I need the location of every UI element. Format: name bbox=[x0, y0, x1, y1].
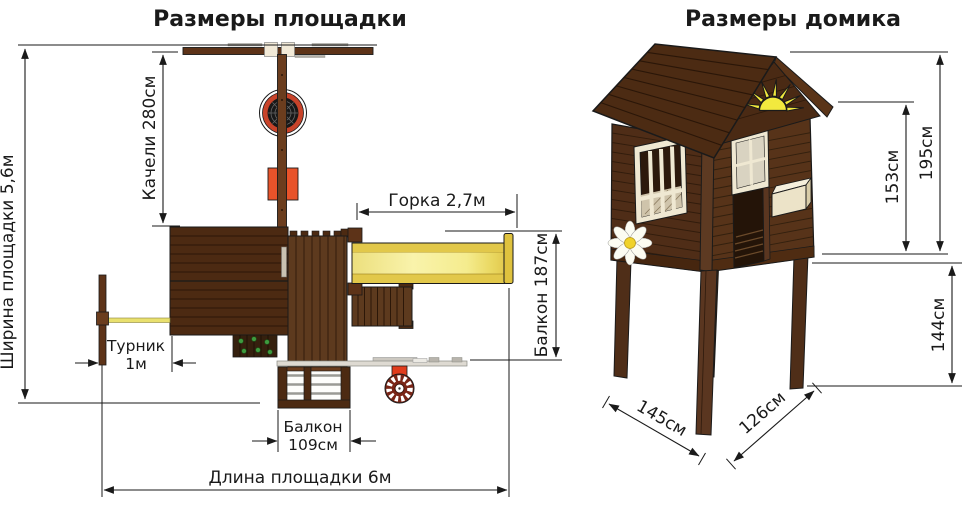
house-title: Размеры домика bbox=[685, 7, 901, 32]
dim-pullup-bar-name: Турник bbox=[106, 337, 165, 355]
house-leg-left bbox=[614, 258, 631, 378]
house-leg-front bbox=[696, 270, 717, 435]
dim-house-depth: 145см bbox=[603, 396, 706, 465]
dim-swing: Качели 280см bbox=[140, 52, 180, 226]
slide-top bbox=[348, 228, 513, 295]
dim-house-width-label: 126см bbox=[736, 388, 790, 439]
playground-title: Размеры площадки bbox=[153, 7, 407, 32]
dim-house-width: 126см bbox=[726, 383, 821, 469]
house-doorway bbox=[733, 186, 770, 268]
swing-post bbox=[278, 55, 287, 228]
playground-diagram: Размеры площадки bbox=[0, 7, 562, 497]
dim-playground-length-label: Длина площадки 6м bbox=[208, 468, 391, 488]
dim-house-legs-height: 144см bbox=[807, 263, 962, 386]
daisy-decoration bbox=[608, 221, 652, 265]
playhouse-roof-top bbox=[170, 227, 288, 335]
dim-balcony-front-name: Балкон bbox=[283, 418, 342, 436]
dim-pullup-bar-value: 1м bbox=[125, 355, 147, 373]
house-side-window bbox=[634, 136, 687, 224]
house-diagram: Размеры домика bbox=[593, 7, 962, 469]
blueprint-page: Размеры площадки bbox=[0, 0, 970, 531]
climbing-wall bbox=[233, 335, 277, 357]
dim-house-wall-height: 153см bbox=[838, 102, 914, 251]
house-corner-post bbox=[700, 140, 714, 272]
dim-slide-label: Горка 2,7м bbox=[388, 191, 486, 211]
dim-pullup-bar: Турник 1м bbox=[75, 336, 196, 373]
dim-balcony-side-label: Балкон 187см bbox=[532, 233, 552, 358]
dim-house-total-height: 195см bbox=[790, 52, 948, 254]
dim-house-legs-height-label: 144см bbox=[929, 298, 949, 353]
house-leg-right bbox=[790, 254, 808, 389]
dim-balcony-front: Балкон 109см bbox=[252, 410, 376, 454]
steering-wheel bbox=[385, 366, 414, 403]
dim-balcony-front-value: 109см bbox=[288, 436, 338, 454]
platform-top bbox=[282, 229, 350, 367]
balcony-front bbox=[278, 367, 350, 408]
dimension-drawing: Размеры площадки bbox=[0, 0, 970, 531]
dim-house-wall-height-label: 153см bbox=[883, 150, 903, 205]
dim-playground-width-label: Ширина площадки 5,6м bbox=[0, 154, 18, 369]
dim-house-total-height-label: 195см bbox=[917, 126, 937, 181]
dim-slide: Горка 2,7м bbox=[357, 191, 517, 228]
dim-swing-label: Качели 280см bbox=[140, 76, 160, 201]
